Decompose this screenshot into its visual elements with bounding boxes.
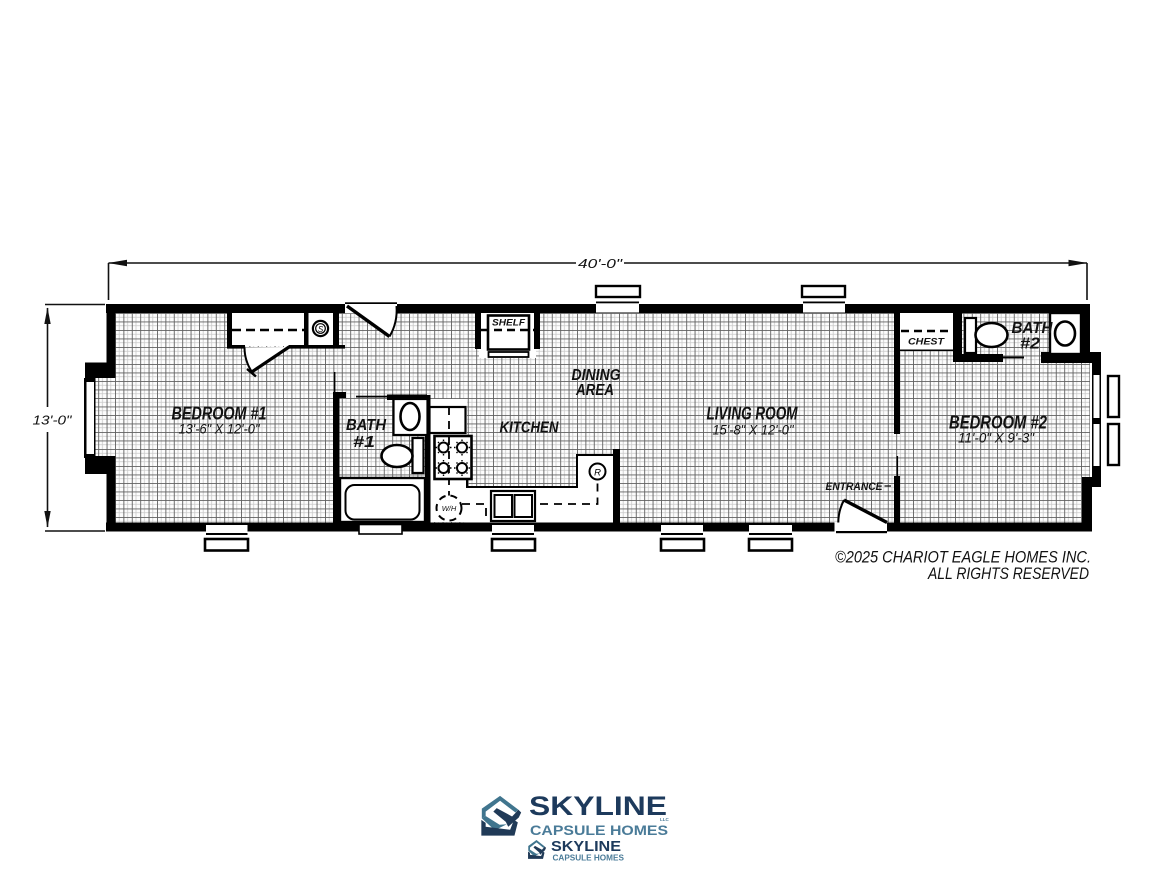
- svg-text:40'-0": 40'-0": [578, 256, 624, 271]
- svg-text:CHEST: CHEST: [908, 337, 946, 347]
- svg-text:KITCHEN: KITCHEN: [500, 420, 559, 437]
- svg-text:SKYLINE: SKYLINE: [551, 838, 621, 855]
- svg-text:BATH: BATH: [1012, 320, 1054, 337]
- svg-text:W/H: W/H: [442, 504, 457, 513]
- svg-text:13'-6" X 12'-0": 13'-6" X 12'-0": [179, 421, 261, 437]
- svg-text:S: S: [318, 325, 324, 334]
- svg-text:LIVING ROOM: LIVING ROOM: [707, 404, 799, 424]
- svg-text:BATH: BATH: [346, 417, 386, 434]
- svg-text:11'-0" X 9'-3": 11'-0" X 9'-3": [958, 430, 1035, 446]
- svg-text:ENTRANCE: ENTRANCE: [826, 481, 884, 493]
- svg-text:R: R: [594, 468, 601, 479]
- svg-text:#2: #2: [1020, 336, 1040, 353]
- svg-text:AREA: AREA: [575, 382, 614, 399]
- svg-text:SKYLINE: SKYLINE: [529, 791, 667, 821]
- svg-text:15'-8" X 12'-0": 15'-8" X 12'-0": [713, 422, 795, 438]
- svg-text:#1: #1: [353, 434, 375, 451]
- svg-text:CAPSULE HOMES: CAPSULE HOMES: [530, 822, 668, 838]
- svg-text:13'-0": 13'-0": [33, 413, 74, 428]
- svg-text:ALL RIGHTS RESERVED: ALL RIGHTS RESERVED: [927, 564, 1089, 583]
- svg-text:SHELF: SHELF: [492, 318, 526, 328]
- svg-text:CAPSULE HOMES: CAPSULE HOMES: [553, 854, 625, 863]
